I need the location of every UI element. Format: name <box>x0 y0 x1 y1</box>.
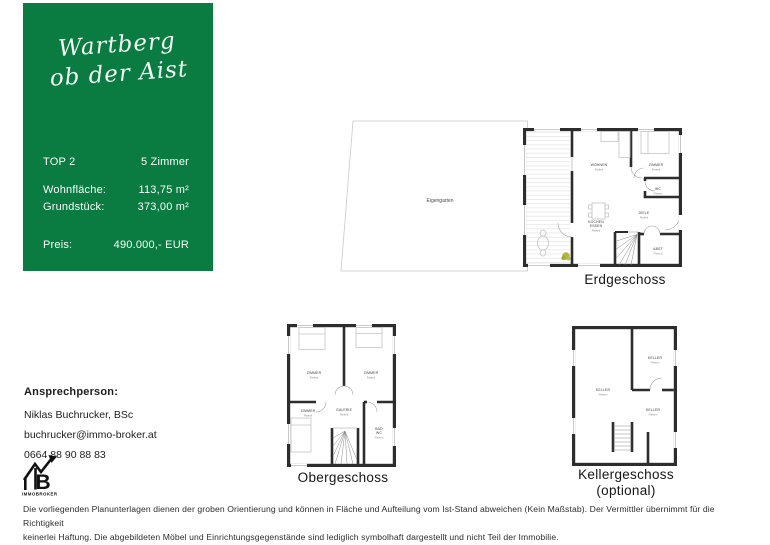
room-label: ZIMMER <box>301 409 316 413</box>
logo-brand-text: IMMOBROKER <box>22 492 58 497</box>
og-outer-walls <box>289 326 395 466</box>
property-info-panel: Wartberg ob der Aist TOP 2 5 Zimmer Wohn… <box>23 3 213 271</box>
price-value: 490.000,- EUR <box>114 239 189 251</box>
rooms-count: 5 Zimmer <box>141 156 189 168</box>
kellergeschoss-caption: Kellergeschoss (optional) <box>546 467 706 499</box>
room-label: ESSEN <box>590 224 603 228</box>
room-label: KELLER <box>646 408 661 412</box>
kg-outer-walls <box>574 328 676 465</box>
room-floor: Parkett <box>304 414 313 418</box>
room-floor: Parkett <box>652 168 661 172</box>
living-area-label: Wohnfläche: <box>43 184 106 196</box>
room-floor: Fliesen <box>649 413 658 417</box>
living-area-value: 113,75 m² <box>138 184 189 196</box>
garden-outline <box>341 121 528 271</box>
disclaimer: Die vorliegenden Planunterlagen dienen d… <box>23 503 749 545</box>
kellergeschoss-caption-line1: Kellergeschoss <box>546 467 706 483</box>
price-row: Preis: 490.000,- EUR <box>43 239 189 251</box>
garden-label: Eigengarten <box>427 198 454 204</box>
room-floor: Parkett <box>595 168 604 172</box>
room-label: ZIMMER <box>307 371 322 375</box>
room-label: WC <box>376 431 382 435</box>
room-label: GALERIE <box>336 408 353 412</box>
expose-page: Wartberg ob der Aist TOP 2 5 Zimmer Wohn… <box>0 0 770 545</box>
living-area-row: Wohnfläche: 113,75 m² <box>43 184 189 196</box>
contact-name: Niklas Buchrucker, BSc <box>24 408 157 423</box>
room-floor: Fliesen <box>654 192 663 196</box>
room-floor: Fliesen <box>375 436 384 440</box>
room-label: WC <box>655 187 661 191</box>
contact-heading: Ansprechperson: <box>24 386 157 398</box>
room-label: ZIMMER <box>649 163 664 167</box>
room-floor: Parkett <box>367 376 376 380</box>
price-label: Preis: <box>43 239 72 251</box>
erdgeschoss-floor-plan: Eigengarten <box>338 115 688 273</box>
erdgeschoss-caption: Erdgeschoss <box>545 272 705 287</box>
contact-email: buchrucker@immo-broker.at <box>24 428 157 443</box>
room-floor: Fliesen <box>654 252 663 256</box>
disclaimer-line1: Die vorliegenden Planunterlagen dienen d… <box>23 503 749 531</box>
immobroker-logo: B IMMOBROKER <box>21 453 69 497</box>
obergeschoss-floor-plan: ZIMMER Parkett ZIMMER Parkett ZIMMER Par… <box>283 320 403 470</box>
room-floor: Fliesen <box>651 361 660 365</box>
kellergeschoss-floor-plan: KELLER Fliesen KELLER Fliesen KELLER Fli… <box>568 322 683 470</box>
room-floor: Parkett <box>640 216 649 220</box>
disclaimer-line2: keinerlei Haftung. Die abgebildeten Möbe… <box>23 531 749 545</box>
room-label: DIELE <box>639 211 650 215</box>
unit-label: TOP 2 <box>43 156 75 168</box>
room-label: ABST <box>653 247 663 251</box>
plot-area-row: Grundstück: 373,00 m² <box>43 201 189 213</box>
plot-area-label: Grundstück: <box>43 201 105 213</box>
room-floor: Parkett <box>592 229 601 233</box>
room-label: ZIMMER <box>364 371 379 375</box>
obergeschoss-caption: Obergeschoss <box>263 470 423 485</box>
room-label: WOHNEN <box>591 163 608 167</box>
room-floor: Fliesen <box>599 393 608 397</box>
kellergeschoss-caption-line2: (optional) <box>546 483 706 499</box>
plot-area-value: 373,00 m² <box>138 201 189 213</box>
room-floor: Parkett <box>310 376 319 380</box>
location-headline: Wartberg ob der Aist <box>21 24 215 96</box>
unit-row: TOP 2 5 Zimmer <box>43 156 189 168</box>
room-label: KELLER <box>596 388 611 392</box>
room-floor: Parkett <box>340 413 349 417</box>
room-label: KELLER <box>648 356 663 360</box>
